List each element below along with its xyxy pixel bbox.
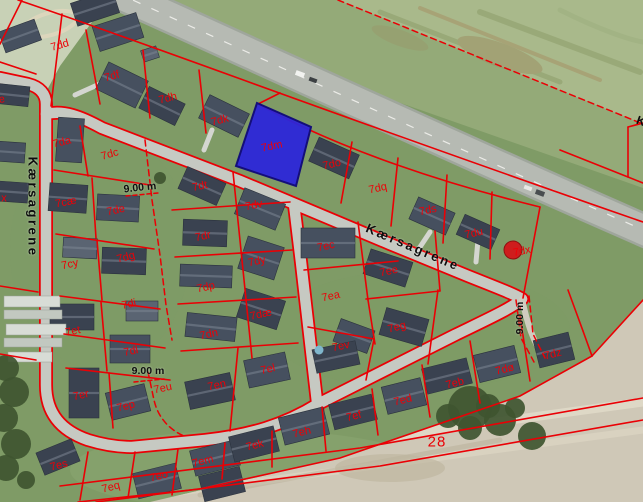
farm-building: [6, 324, 66, 335]
tree: [0, 377, 29, 407]
cadastral-map[interactable]: 7dd7df7dh7dk7dm7do7dq7ds7du7dx7da7dc7cæ7…: [0, 0, 643, 502]
house-roof: [69, 368, 99, 418]
tree: [154, 172, 166, 184]
house-roof: [62, 237, 97, 259]
house-roof: [126, 301, 158, 321]
tree: [518, 422, 546, 450]
point-marker[interactable]: [504, 241, 522, 259]
house-roof: [110, 335, 150, 363]
house-roof: [55, 117, 84, 163]
house-roof: [48, 183, 88, 214]
house-roof: [0, 83, 30, 106]
tree: [17, 471, 35, 489]
house-roof: [102, 247, 147, 275]
house-roof: [0, 141, 26, 163]
house-roof: [183, 219, 228, 247]
house-roof: [0, 181, 29, 203]
farm-building: [4, 310, 62, 319]
farm-building: [4, 296, 60, 307]
house-roof: [96, 194, 139, 222]
farm-building: [4, 338, 62, 347]
tree: [505, 398, 525, 418]
tree: [1, 429, 31, 459]
aerial-photo-layer: [0, 0, 643, 502]
house-roof: [301, 228, 355, 258]
house-roof: [180, 264, 233, 288]
garden-pool: [315, 346, 324, 355]
house-roof: [185, 312, 237, 341]
